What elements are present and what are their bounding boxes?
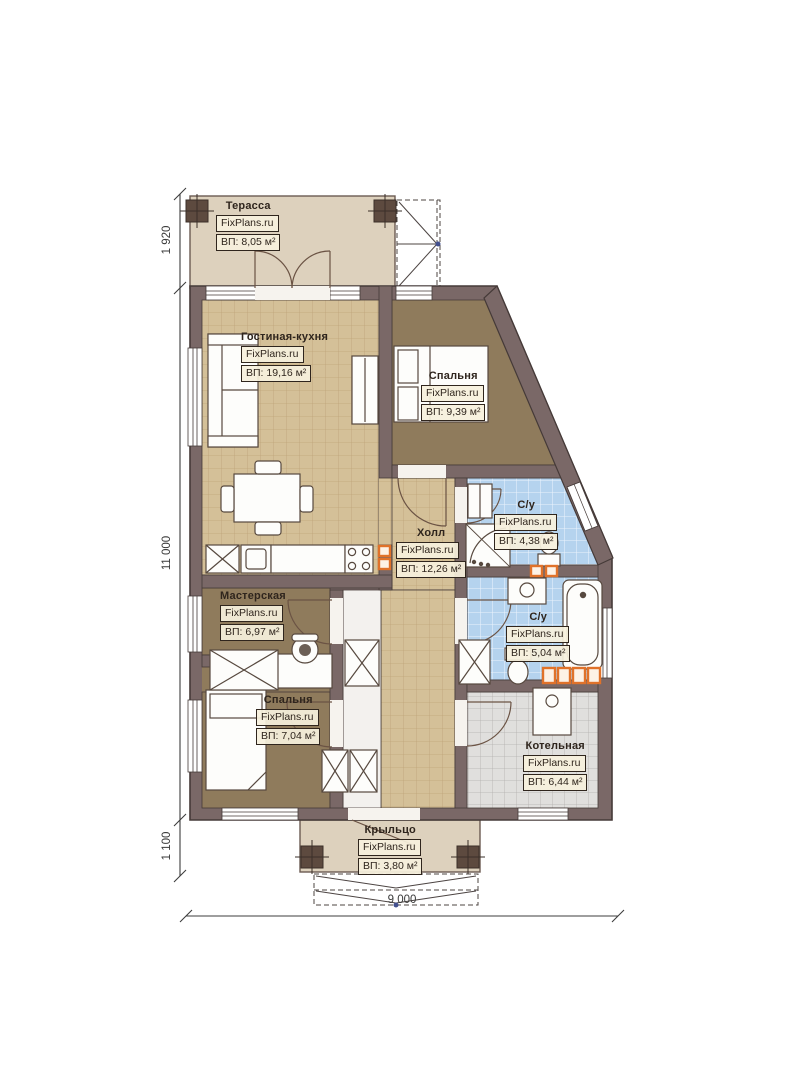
room-name: С/у bbox=[517, 499, 535, 511]
room-name: С/у bbox=[529, 611, 547, 623]
dim-label-terrace-depth: 1 920 bbox=[161, 212, 173, 268]
kitchen-row bbox=[206, 545, 373, 573]
closet-1 bbox=[210, 650, 278, 690]
window-bedroom1-top bbox=[396, 286, 432, 300]
brand-badge: FixPlans.ru bbox=[220, 605, 283, 622]
marker-bath-2 bbox=[546, 566, 557, 576]
window-living-top-2 bbox=[330, 286, 360, 300]
brand-badge: FixPlans.ru bbox=[523, 755, 586, 772]
dim-label-porch-depth: 1 100 bbox=[161, 818, 173, 874]
brand-badge: FixPlans.ru bbox=[241, 346, 304, 363]
room-label-bedroom1: Спальня FixPlans.ru ВП: 9,39 м² bbox=[421, 370, 485, 421]
tv-stand bbox=[352, 356, 378, 424]
room-area: ВП: 9,39 м² bbox=[421, 404, 485, 421]
dim-label-house-width: 9 000 bbox=[372, 894, 432, 906]
room-label-hall: Холл FixPlans.ru ВП: 12,26 м² bbox=[396, 527, 466, 578]
closet-3 bbox=[322, 750, 348, 792]
room-label-workshop: Мастерская FixPlans.ru ВП: 6,97 м² bbox=[220, 590, 286, 641]
room-name: Крыльцо bbox=[365, 824, 416, 836]
brand-badge: FixPlans.ru bbox=[506, 626, 569, 643]
closet-5 bbox=[459, 640, 490, 684]
marker-row-2 bbox=[558, 668, 570, 683]
window-workshop-left bbox=[188, 596, 202, 652]
room-area: ВП: 3,80 м² bbox=[358, 858, 422, 875]
living-hall-opening bbox=[379, 478, 392, 545]
brand-badge: FixPlans.ru bbox=[216, 215, 279, 232]
room-name: Холл bbox=[417, 527, 445, 539]
room-label-bath1: С/у FixPlans.ru ВП: 4,38 м² bbox=[494, 499, 558, 550]
window-bedroom2-bottom bbox=[222, 808, 298, 820]
room-name: Терасса bbox=[226, 200, 271, 212]
window-living-top-1 bbox=[206, 286, 256, 300]
marker-row-1 bbox=[543, 668, 555, 683]
office-chair bbox=[292, 634, 318, 663]
closet-2 bbox=[345, 640, 379, 686]
floor-plan-page: Терасса FixPlans.ru ВП: 8,05 м² Гостиная… bbox=[0, 0, 792, 1080]
room-name: Мастерская bbox=[220, 590, 286, 602]
brand-badge: FixPlans.ru bbox=[396, 542, 459, 559]
room-area: ВП: 6,97 м² bbox=[220, 624, 284, 641]
room-name: Гостиная-кухня bbox=[241, 331, 328, 343]
room-area: ВП: 4,38 м² bbox=[494, 533, 558, 550]
window-living-left bbox=[188, 348, 202, 446]
dim-label-house-depth: 11 000 bbox=[161, 525, 173, 581]
room-label-terrace: Терасса FixPlans.ru ВП: 8,05 м² bbox=[216, 200, 280, 251]
room-label-porch: Крыльцо FixPlans.ru ВП: 3,80 м² bbox=[358, 824, 422, 875]
marker-row-4 bbox=[588, 668, 600, 683]
room-area: ВП: 5,04 м² bbox=[506, 645, 570, 662]
terrace-steps bbox=[397, 200, 441, 288]
boiler-unit bbox=[533, 688, 571, 735]
room-label-bath2: С/у FixPlans.ru ВП: 5,04 м² bbox=[506, 611, 570, 662]
room-area: ВП: 6,44 м² bbox=[523, 774, 587, 791]
room-name: Спальня bbox=[264, 694, 313, 706]
sink-bath2 bbox=[508, 578, 546, 604]
marker-row-3 bbox=[573, 668, 585, 683]
wall-kitchen bbox=[202, 575, 392, 588]
brand-badge: FixPlans.ru bbox=[256, 709, 319, 726]
brand-badge: FixPlans.ru bbox=[421, 385, 484, 402]
marker-bath-1 bbox=[531, 566, 542, 576]
marker-kitchen-2 bbox=[379, 559, 390, 569]
room-area: ВП: 19,16 м² bbox=[241, 365, 311, 382]
room-label-living: Гостиная-кухня FixPlans.ru ВП: 19,16 м² bbox=[241, 331, 328, 382]
closet-4 bbox=[350, 750, 377, 792]
room-name: Спальня bbox=[429, 370, 478, 382]
window-bedroom2-left bbox=[188, 700, 202, 772]
room-label-boiler: Котельная FixPlans.ru ВП: 6,44 м² bbox=[523, 740, 587, 791]
marker-kitchen-1 bbox=[379, 546, 390, 556]
brand-badge: FixPlans.ru bbox=[494, 514, 557, 531]
brand-badge: FixPlans.ru bbox=[358, 839, 421, 856]
wall-living-hall-top bbox=[379, 286, 392, 478]
room-area: ВП: 8,05 м² bbox=[216, 234, 280, 251]
window-boiler-bottom bbox=[518, 808, 568, 820]
room-area: ВП: 7,04 м² bbox=[256, 728, 320, 745]
hall-lower-floor bbox=[381, 590, 455, 808]
room-label-bedroom2: Спальня FixPlans.ru ВП: 7,04 м² bbox=[256, 694, 320, 745]
room-name: Котельная bbox=[526, 740, 585, 752]
room-area: ВП: 12,26 м² bbox=[396, 561, 466, 578]
bath1-cabinet bbox=[468, 484, 492, 518]
